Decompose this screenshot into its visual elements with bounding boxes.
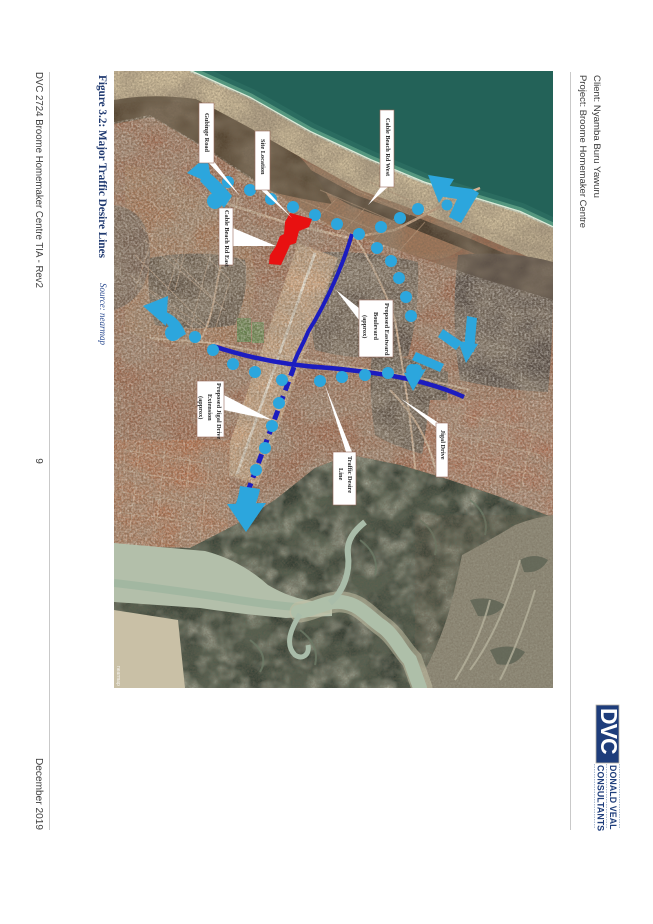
svg-text:nearmap: nearmap [115,666,121,686]
svg-text:Gubinge Road: Gubinge Road [203,113,210,153]
svg-text:DVC: DVC [596,708,622,754]
svg-text:Proposed Eastward: Proposed Eastward [383,303,390,356]
svg-text:Figure 3.2: Major Traffic Desi: Figure 3.2: Major Traffic Desire Lines [96,75,108,259]
svg-text:DONALD VEAL: DONALD VEAL [608,765,618,830]
svg-text:Client: Nyamba Buru Yawuru: Client: Nyamba Buru Yawuru [592,75,603,198]
svg-text:Proposed Jigal Drive: Proposed Jigal Drive [215,383,222,439]
svg-text:(approx): (approx) [361,315,368,338]
svg-text:(approx): (approx) [197,396,204,419]
svg-text:December 2019: December 2019 [33,758,44,830]
svg-text:Project: Broome Homemaker Cent: Project: Broome Homemaker Centre [578,75,589,228]
svg-text:CONSULTANTS: CONSULTANTS [596,765,606,831]
svg-text:Site Location: Site Location [259,139,266,175]
svg-text:Traffic Desire: Traffic Desire [346,456,353,493]
svg-text:Jigal Drive: Jigal Drive [439,430,446,460]
svg-text:9: 9 [33,458,44,464]
svg-text:Extension: Extension [206,394,213,421]
svg-text:Cable Beach Rd West: Cable Beach Rd West [384,118,391,177]
svg-text:Cable Beach Rd East: Cable Beach Rd East [223,210,230,268]
svg-text:Line: Line [337,468,344,480]
svg-text:DVC 2724 Broome Homemaker Cent: DVC 2724 Broome Homemaker Centre TIA - R… [33,72,44,288]
svg-text:Boulevard: Boulevard [372,312,379,340]
svg-text:Source: nearmap: Source: nearmap [98,283,108,345]
